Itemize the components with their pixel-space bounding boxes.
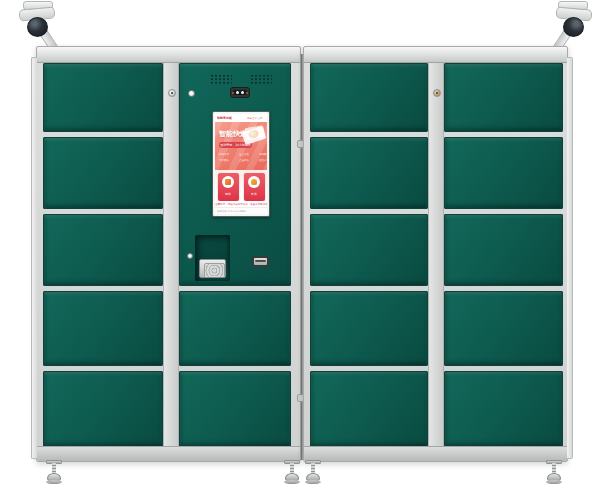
keyhole-icon[interactable] (433, 89, 441, 97)
face-camera-module (230, 87, 250, 98)
cabinet-bottom-rail (304, 446, 567, 461)
scanner-bay (195, 235, 230, 281)
locker-door[interactable] (179, 371, 291, 447)
foot-disc (546, 480, 562, 484)
speaker-grille-icon (250, 74, 272, 84)
foot-disc (305, 480, 321, 484)
feature-item: 全程监控 (239, 159, 249, 162)
lock-strip (163, 63, 179, 447)
feature-item: 便捷取件 (259, 153, 267, 156)
pickup-icon-circle (248, 176, 260, 188)
foot-disc (46, 480, 62, 484)
deposit-box-icon (225, 179, 231, 185)
cabinet-top-rail (304, 47, 567, 63)
deposit-card-button[interactable]: 存件 (218, 173, 239, 201)
cabinet-side-panel (567, 57, 573, 459)
service-column: 智能寄存柜 服务正常 在线 智能快递 自助寄存 · 24小时服务 扫 (179, 63, 291, 447)
right-cabinet-right-door-column (444, 63, 563, 447)
round-button[interactable] (187, 253, 193, 259)
locker-door[interactable] (444, 291, 563, 366)
notice-text: 温馨提示：请按屏幕提示操作，妥善保管取件码 (215, 203, 267, 206)
feature-item: 实时通知 (219, 159, 229, 162)
locker-door[interactable] (310, 214, 428, 286)
leveling-foot (44, 460, 64, 485)
right-cabinet (303, 46, 568, 462)
locker-door[interactable] (179, 291, 291, 366)
deposit-card-label: 存件 (225, 192, 231, 196)
cabinet-side-panel (31, 57, 37, 459)
smart-locker-product-photo: 智能寄存柜 服务正常 在线 智能快递 自助寄存 · 24小时服务 扫 (0, 0, 613, 489)
touchscreen[interactable]: 智能寄存柜 服务正常 在线 智能快递 自助寄存 · 24小时服务 扫 (212, 111, 270, 217)
keyhole-icon[interactable] (168, 89, 176, 97)
screen-content: 智能寄存柜 服务正常 在线 智能快递 自助寄存 · 24小时服务 扫 (215, 114, 267, 214)
locker-door[interactable] (43, 291, 163, 366)
pickup-bag-icon (251, 179, 257, 185)
leveling-foot (544, 460, 564, 485)
locker-door[interactable] (43, 63, 163, 132)
screen-hero-banner: 智能快递 自助寄存 · 24小时服务 扫码存件 安全保管 便捷取件 实时通知 (215, 122, 267, 170)
locker-door[interactable] (444, 63, 563, 132)
locker-door[interactable] (310, 137, 428, 209)
qr-scanner-icon[interactable] (199, 259, 226, 278)
screen-footer: 客服热线 400-000-8888 V1.0 (215, 207, 267, 214)
receipt-slot-icon (252, 256, 269, 267)
left-cabinet-interior: 智能寄存柜 服务正常 在线 智能快递 自助寄存 · 24小时服务 扫 (43, 63, 296, 448)
camera-lens-icon (236, 91, 239, 94)
pickup-card-button[interactable]: 取件 (244, 173, 265, 201)
footer-hotline-text: 客服热线 400-000-8888 (217, 210, 246, 213)
locker-door[interactable] (444, 137, 563, 209)
deposit-icon-circle (222, 176, 234, 188)
locker-door[interactable] (43, 214, 163, 286)
lock-strip (428, 63, 444, 447)
feature-item: 扫码存件 (219, 153, 229, 156)
locker-door[interactable] (310, 63, 428, 132)
hero-feature-list: 扫码存件 安全保管 便捷取件 实时通知 全程监控 语音引导 (219, 151, 267, 163)
locker-door[interactable] (444, 214, 563, 286)
screen-brand-label: 智能寄存柜 (217, 116, 232, 121)
screen-status-text: 服务正常 在线 (247, 117, 263, 120)
left-cabinet: 智能寄存柜 服务正常 在线 智能快递 自助寄存 · 24小时服务 扫 (36, 46, 301, 462)
screen-header: 智能寄存柜 服务正常 在线 (215, 114, 267, 122)
foot-disc (284, 480, 300, 484)
camera-dome-lens-icon (27, 17, 48, 37)
kiosk-service-panel: 智能寄存柜 服务正常 在线 智能快递 自助寄存 · 24小时服务 扫 (179, 63, 291, 286)
right-cabinet-left-door-column (310, 63, 428, 447)
indicator-led-icon (246, 92, 248, 94)
pickup-card-label: 取件 (251, 192, 257, 196)
locker-door[interactable] (444, 371, 563, 447)
feature-item: 安全保管 (239, 153, 249, 156)
locker-door[interactable] (43, 137, 163, 209)
round-button[interactable] (188, 90, 195, 97)
camera-lens-icon (241, 91, 244, 94)
locker-door[interactable] (43, 371, 163, 447)
speaker-grille-icon (210, 74, 232, 84)
leveling-foot (303, 460, 323, 485)
camera-dome-lens-icon (563, 17, 584, 37)
right-cabinet-interior (310, 63, 563, 448)
cabinet-top-rail (37, 47, 300, 63)
cabinet-bottom-rail (37, 446, 300, 461)
left-door-column (43, 63, 163, 447)
indicator-led-icon (232, 92, 234, 94)
action-card-row: 存件 取件 (215, 170, 267, 201)
parcel-illustration (241, 124, 267, 147)
locker-door[interactable] (310, 371, 428, 447)
feature-item: 语音引导 (259, 159, 267, 162)
leveling-foot (282, 460, 302, 485)
locker-door[interactable] (310, 291, 428, 366)
